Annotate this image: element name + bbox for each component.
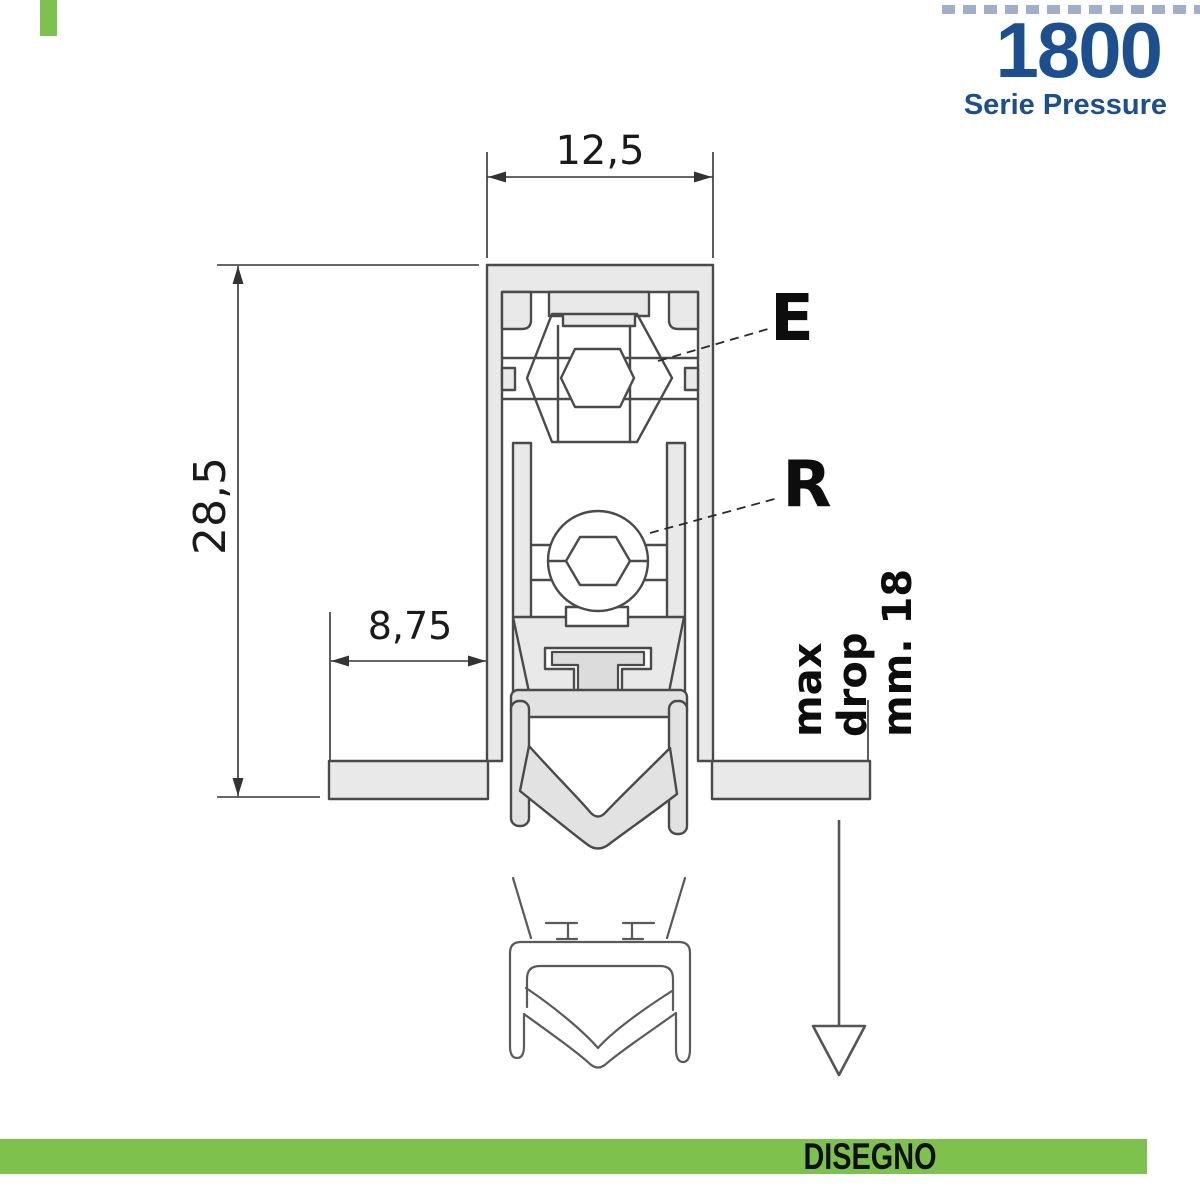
dimension-height-28-5 xyxy=(217,265,479,797)
casing-top-bridge xyxy=(549,292,649,326)
dim-label-width: 12,5 xyxy=(520,128,680,174)
footer-bar xyxy=(0,1139,1147,1174)
dropped-gasket-detail xyxy=(510,878,690,1068)
screw-hexagon-inner xyxy=(561,349,634,407)
casing-right-wing xyxy=(669,292,698,329)
left-mounting-flange xyxy=(329,761,488,799)
dim-label-height: 28,5 xyxy=(187,436,235,576)
part-label-r: R xyxy=(775,452,839,518)
max-drop-line1: max drop xyxy=(786,537,876,737)
part-label-e: E xyxy=(760,286,824,352)
rubber-gasket xyxy=(511,690,687,849)
casing-left-tooth xyxy=(502,368,515,390)
casing-left-wing xyxy=(502,292,531,329)
max-drop-arrow-icon xyxy=(813,820,865,1075)
casing-right-tooth xyxy=(685,368,698,390)
max-drop-line2: mm. 18 xyxy=(876,537,921,737)
technical-drawing xyxy=(0,0,1200,1200)
max-drop-note: max drop mm. 18 xyxy=(786,537,878,737)
dim-label-flange: 8,75 xyxy=(330,604,490,648)
right-mounting-flange xyxy=(712,761,870,799)
roller-hexagon xyxy=(566,537,630,585)
page: 1800 Serie Pressure xyxy=(0,0,1200,1200)
footer-label: DISEGNO xyxy=(784,1139,956,1174)
